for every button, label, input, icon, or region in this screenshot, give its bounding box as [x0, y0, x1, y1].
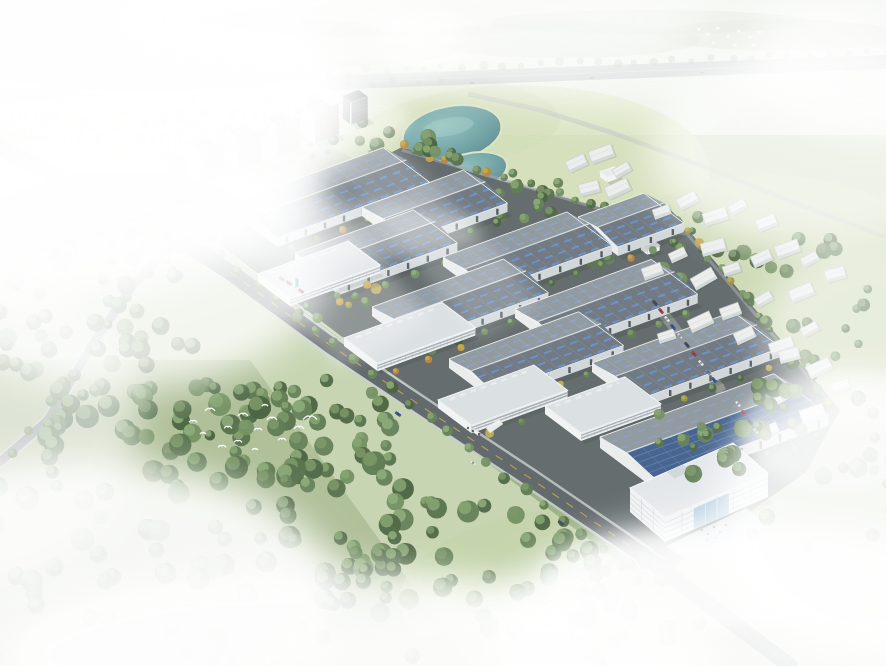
fog-overlay [0, 0, 886, 666]
aerial-render-of-industrial-park [0, 0, 886, 666]
scene-canvas [0, 0, 886, 666]
